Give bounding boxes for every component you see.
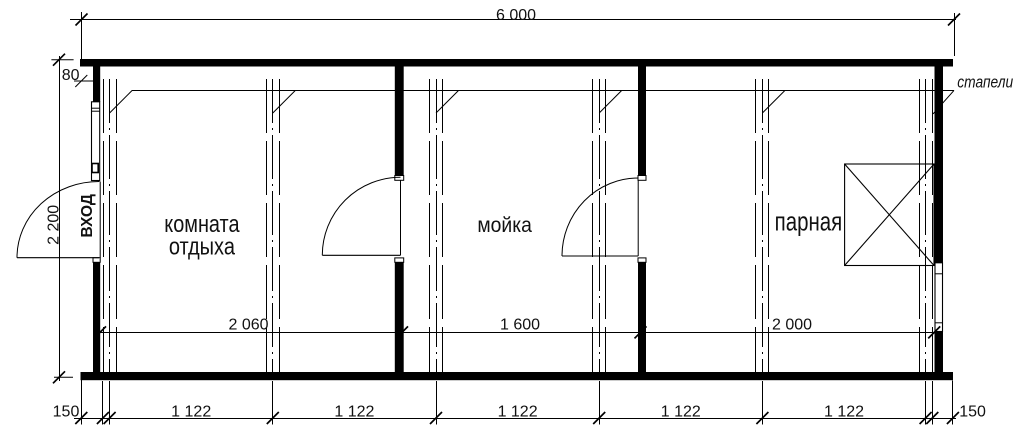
svg-text:80: 80 bbox=[62, 67, 80, 84]
svg-text:150: 150 bbox=[959, 404, 986, 421]
svg-text:1 122: 1 122 bbox=[498, 404, 538, 421]
svg-text:1 122: 1 122 bbox=[171, 404, 211, 421]
svg-text:150: 150 bbox=[53, 404, 80, 421]
svg-text:1 122: 1 122 bbox=[334, 404, 374, 421]
svg-text:2 200: 2 200 bbox=[45, 205, 62, 245]
svg-text:2 000: 2 000 bbox=[772, 317, 812, 334]
svg-text:ВХОД: ВХОД bbox=[79, 194, 96, 237]
svg-text:1 122: 1 122 bbox=[824, 404, 864, 421]
svg-text:стапели: стапели bbox=[957, 73, 1013, 91]
svg-text:парная: парная bbox=[775, 208, 843, 237]
svg-text:1 600: 1 600 bbox=[500, 317, 540, 334]
svg-text:отдыха: отдыха bbox=[169, 233, 236, 260]
svg-text:мойка: мойка bbox=[477, 213, 532, 237]
svg-text:1 122: 1 122 bbox=[661, 404, 701, 421]
svg-text:2 060: 2 060 bbox=[228, 317, 268, 334]
svg-text:6 000: 6 000 bbox=[496, 7, 536, 24]
